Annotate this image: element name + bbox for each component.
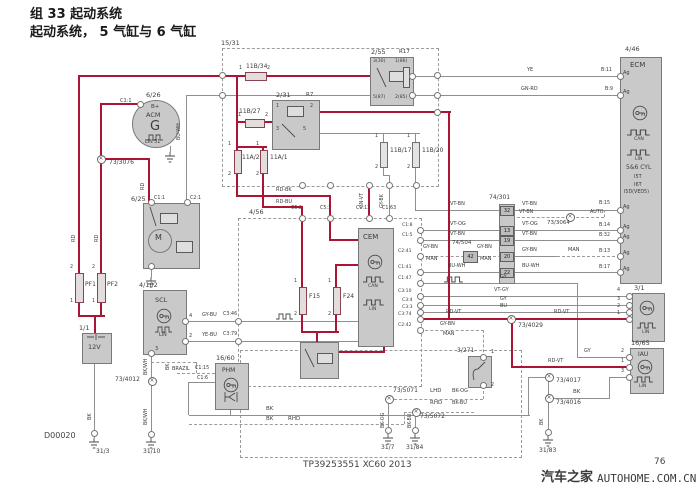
wire-dashed-segment [404, 412, 405, 424]
wire-power-segment [301, 331, 339, 333]
wire-power-segment [79, 75, 375, 77]
wire-power-segment [368, 185, 370, 219]
fuse-11A-1 [260, 150, 268, 174]
label-5-87-: 5(87) [373, 96, 385, 101]
wire-power-segment [148, 158, 150, 204]
pin-circle [417, 302, 424, 309]
label-c1-41: C1:41 [398, 266, 412, 271]
pin-circle [327, 215, 334, 222]
label-74-301: 74/301 [489, 195, 510, 201]
label-1: 1 [617, 312, 620, 317]
pin-circle [235, 338, 242, 345]
label-man: MAN [480, 257, 491, 262]
watermark-site-name: 汽车之家 [541, 471, 593, 484]
label-ag: Ag [623, 235, 630, 240]
pin-circle [299, 215, 306, 222]
label-can: CAN [368, 285, 378, 290]
wire-signal-segment [189, 415, 530, 416]
label-rd: RD [95, 235, 100, 242]
pin-circle [417, 316, 424, 323]
diagram-id: D00020 [44, 432, 76, 440]
label-b-: B+ [151, 105, 159, 111]
pin-circle [417, 293, 424, 300]
wire-power-segment [236, 195, 331, 197]
wire-signal-segment [420, 296, 629, 297]
label-2-85-: 2(85) [395, 96, 407, 101]
lin-bus-icon [627, 149, 651, 156]
connector-pin: 20 [500, 252, 514, 262]
label-1: 1 [70, 300, 73, 305]
label-r7: R7 [306, 93, 313, 99]
label-11a-2: 11A/2 [242, 155, 260, 161]
fuse-11B-20 [412, 142, 420, 168]
ground-symbol [164, 152, 176, 163]
wire-signal-segment [415, 166, 416, 211]
label-bk: BK [266, 417, 273, 423]
label-c5-2: C5:2 [291, 207, 302, 212]
wire-signal-segment [412, 76, 620, 77]
switch-contact [303, 347, 317, 369]
label-c1-15: C1:15 [195, 367, 209, 372]
wire-power-segment [100, 301, 102, 316]
label-gy-bn: GY-BN [477, 245, 492, 250]
switch-contact [374, 66, 390, 90]
label-c1-13: C1:13 [356, 207, 370, 212]
wire-power-segment [511, 318, 513, 368]
label-73-4029: 73/4029 [518, 323, 543, 329]
wire-dashed-segment [189, 424, 404, 425]
wire-power-segment [420, 318, 633, 320]
splice-connector: × [148, 377, 157, 386]
label-lin: LIN [159, 334, 167, 339]
label-vt-og: VT-OG [450, 222, 466, 227]
pin-circle [417, 280, 424, 287]
wire-dashed-segment [604, 210, 605, 217]
pin-circle [91, 430, 98, 437]
label-ye-bu: YE-BU [202, 333, 217, 338]
label-c1-1: C1:1 [154, 197, 165, 202]
page-number: 76 [654, 458, 665, 467]
label-pf1: PF1 [85, 282, 96, 288]
wire-signal-segment [188, 382, 189, 415]
label-acm: ACM [146, 112, 160, 119]
label-11a-1: 11A/1 [270, 155, 288, 161]
wire-signal-segment [94, 362, 95, 438]
label-2: 2 [328, 313, 331, 318]
label-2: 2 [621, 350, 624, 355]
label-bk-bu: BK-BU [409, 414, 414, 428]
label-11b-34: 11B/34 [246, 64, 267, 70]
solenoid-contact [176, 241, 193, 253]
pin-circle [626, 316, 633, 323]
pin-circle [626, 293, 633, 300]
relay-coil [287, 106, 304, 117]
label-c2-41: C2:41 [398, 250, 412, 255]
label-scl: SCL [155, 297, 167, 304]
label-ecm: ECM [630, 62, 645, 69]
wire-power-segment [236, 171, 238, 197]
label-gy-bu: GY-BU [202, 313, 217, 318]
wire-signal-segment [185, 321, 240, 322]
label-lin: LIN [639, 385, 646, 390]
pin-circle [626, 374, 633, 381]
pin-circle [148, 350, 155, 357]
label-b-14: B:14 [599, 224, 610, 229]
label-m: M [155, 234, 162, 242]
label-2: 2 [92, 266, 95, 271]
pin-circle [148, 431, 155, 438]
label-1: 1 [276, 105, 279, 110]
wiring-diagram-canvas: 组 33 起动系统 起动系统， 5 气缸与 6 气缸 TP39253551 XC… [0, 0, 700, 494]
label-c3-10: C3:10 [398, 290, 412, 295]
label-phm: PHM [222, 368, 235, 374]
label-73-5072: 73/5072 [420, 414, 445, 420]
connector-pin: 19 [500, 236, 514, 246]
label-rd: RD [141, 183, 146, 190]
pin-circle [626, 302, 633, 309]
fuse-11B-17 [380, 142, 388, 168]
label-2: 2 [310, 105, 313, 110]
battery-symbol [85, 334, 107, 340]
switch-contact [280, 122, 298, 140]
label-bk-wh: BK/WH [145, 409, 150, 425]
wire-dashed-segment [557, 256, 620, 257]
label-ag: Ag [623, 267, 630, 272]
label-1: 1 [294, 280, 297, 285]
label-c2-1: C2:1 [190, 197, 201, 202]
label-6-25: 6/25 [131, 196, 146, 203]
pin-circle [148, 263, 155, 270]
label-lin: LIN [635, 158, 642, 163]
label-1: 1 [92, 300, 95, 305]
pin-circle [299, 182, 306, 189]
label-73-4016: 73/4016 [556, 400, 581, 406]
label-i6t: I6T [634, 183, 642, 188]
label-lin-31: LIN 31 [145, 141, 160, 146]
solenoid-coil [160, 213, 178, 224]
pulse-wave [155, 326, 173, 333]
label-5-6-cyl: 5&6 CYL [626, 165, 651, 171]
label-gn-rd: GN-RD [521, 87, 538, 92]
wire-power-segment [335, 264, 337, 289]
fuse-11A-2 [234, 150, 242, 174]
label-b-11: B:11 [601, 69, 612, 74]
label-gy: GY [584, 349, 591, 354]
label-4: 4 [617, 289, 620, 294]
wire-power-segment [78, 75, 80, 274]
label-1: 1 [621, 360, 624, 365]
can-bus-icon [363, 276, 385, 283]
label-rd-vt: RD-VT [548, 359, 563, 364]
label-bu-wh: BU-WH [522, 264, 539, 269]
wire-signal-segment [528, 377, 529, 415]
label-lin: LIN [369, 308, 376, 313]
pin-circle [409, 73, 416, 80]
label-gy-bn: GY-BN [522, 248, 537, 253]
pin-circle [417, 227, 424, 234]
label-73-3076: 73/3076 [109, 160, 134, 166]
label-b-9: B:9 [605, 88, 613, 93]
wire-power-segment [335, 312, 337, 333]
label-c3-46: C3:46 [223, 313, 237, 318]
label-ag: Ag [623, 71, 630, 76]
label-bk-og: BK-OG [452, 389, 468, 394]
pin-circle [219, 92, 226, 99]
label-vt-bn: VT-BN [522, 202, 537, 207]
label-4-102: 4/102 [139, 282, 158, 289]
label-gy: GY [500, 297, 507, 302]
fuse-PF2 [97, 273, 106, 303]
splice-connector: × [545, 394, 554, 403]
wire-signal-segment [512, 272, 620, 273]
label-1: 1 [375, 135, 378, 140]
label-31-3: 31/3 [96, 449, 109, 455]
pin-circle [386, 215, 393, 222]
label-gy-bn: GY-BN [440, 322, 455, 327]
label-4-46: 4/46 [625, 46, 640, 53]
splice-connector: × [507, 315, 516, 324]
label-g: G [150, 120, 160, 133]
diagram-title-line2: 起动系统， 5 气缸与 6 气缸 [30, 26, 196, 39]
wire-signal-segment [415, 210, 500, 211]
wire-dashed-segment [151, 362, 196, 363]
label-lhd: LHD [430, 389, 441, 395]
key-icon [637, 359, 653, 375]
label-i5t: I5T [634, 175, 642, 180]
splice-connector: × [385, 395, 394, 404]
pin-circle [235, 318, 242, 325]
label-1: 1 [239, 67, 242, 72]
pin-circle [626, 354, 633, 361]
pin-circle [417, 253, 424, 260]
label-1-86-: 1(86) [395, 60, 407, 65]
label-c5-1: C5:1 [320, 207, 331, 212]
wire-power-segment [318, 111, 451, 113]
label-2: 2 [294, 313, 297, 318]
label-bk-wh: BK/WH [145, 359, 150, 375]
splice-connector: × [97, 155, 106, 164]
wire-power-segment [329, 239, 360, 241]
wire-signal-segment [151, 381, 152, 437]
label-1-1: 1/1 [79, 325, 89, 332]
label-bk-bu: BK-BU [452, 401, 467, 406]
label-f15: F15 [309, 294, 320, 300]
label-rd-bk: RD-BK [276, 188, 292, 193]
label-gy-bn: GY-BN [423, 245, 438, 250]
wire-signal-segment [415, 133, 416, 142]
fuse-11B-34 [245, 72, 267, 81]
label-12v: 12V [88, 344, 101, 351]
label-73-4017: 73/4017 [556, 378, 581, 384]
label-3: 3 [276, 128, 279, 133]
label-iau: IAU [638, 352, 648, 358]
transistor-glyph [222, 391, 240, 403]
fuse-F24 [333, 287, 341, 315]
lin-bus-icon [637, 322, 657, 329]
label-b-17: B:17 [599, 266, 610, 271]
label-3: 3 [617, 298, 620, 303]
pin-circle [137, 101, 144, 108]
switch-contact [146, 205, 160, 229]
document-reference: TP39253551 XC60 2013 [303, 461, 412, 470]
diagram-title-line1: 组 33 起动系统 [30, 8, 122, 21]
pin-circle [327, 182, 334, 189]
label-vt-gy: VT-GY [494, 288, 509, 293]
label-16-65: 16/65 [631, 340, 650, 347]
pin-circle [386, 182, 393, 189]
pin-circle [182, 318, 189, 325]
wire-signal-segment [512, 256, 557, 257]
wire-power-segment [511, 366, 631, 368]
label-74-504: 74/504 [452, 241, 471, 247]
connector-pin: 13 [500, 226, 514, 236]
label-c3-74: C3:74 [398, 313, 412, 318]
label-vt-bn: VT-BN [522, 232, 537, 237]
label-1: 1 [328, 280, 331, 285]
label-c3-4: C3:4 [402, 299, 413, 304]
label-c3-79: C3:79 [223, 333, 237, 338]
pin-circle [219, 72, 226, 79]
label-2: 2 [265, 114, 268, 119]
label-ag: Ag [623, 90, 630, 95]
label-bu-wh: BU-WH [178, 123, 183, 140]
wire-signal-segment [312, 133, 420, 134]
label-rd-vt: RD-VT [446, 310, 461, 315]
label-man: MAN [426, 257, 437, 262]
label-b-15: B:15 [599, 202, 610, 207]
connector-pin: 32 [500, 206, 514, 216]
pin-circle [182, 338, 189, 345]
key-icon [639, 300, 655, 316]
label-ag: Ag [623, 205, 630, 210]
label-bu: BU [500, 304, 507, 309]
label-vt-bn: VT-BN [450, 202, 465, 207]
wire-signal-segment [185, 341, 240, 342]
label-man: MAN [443, 332, 454, 337]
fuse-11B-27 [245, 119, 265, 128]
label-pf2: PF2 [107, 282, 118, 288]
label-73-5071: 73/5071 [393, 388, 418, 394]
label-rd-vt: RD-VT [554, 310, 569, 315]
label-2: 2 [189, 334, 192, 339]
lin-bus-icon [363, 299, 385, 306]
wire-power-segment [262, 171, 264, 208]
pin-circle [366, 215, 373, 222]
label-ag: Ag [623, 225, 630, 230]
label-c1-5: C1:5 [402, 234, 413, 239]
label-2-55: 2/55 [371, 49, 386, 56]
label-c1-8: C1:8 [402, 224, 413, 229]
label-1: 1 [228, 143, 231, 148]
ground-symbol [542, 436, 554, 447]
label-2: 2 [228, 173, 231, 178]
pin-circle [366, 182, 373, 189]
label-3-271: 3/271 [457, 348, 474, 354]
watermark-site-url: AUTOHOME.COM.CN [597, 473, 696, 484]
label-31-83: 31/83 [539, 448, 556, 454]
pulse-wave [276, 313, 294, 320]
label-bk: BK [541, 419, 546, 425]
wire-power-segment [100, 104, 102, 274]
label-rd-bu: RD-BU [276, 200, 292, 205]
pin-circle [434, 72, 441, 79]
wire-dashed-segment [512, 217, 604, 218]
relay-coil [317, 353, 333, 364]
label-1: 1 [407, 135, 410, 140]
label-can: CAN [634, 138, 644, 143]
label-bk: BK [266, 407, 273, 413]
wire-power-segment [335, 264, 360, 266]
label-31-84: 31/84 [406, 445, 423, 451]
wire-power-segment [337, 351, 385, 353]
label-rd: RD [72, 235, 77, 242]
label-15-31: 15/31 [221, 40, 240, 47]
pin-circle [409, 92, 416, 99]
key-switch-glyph [469, 359, 489, 383]
key-icon [156, 308, 172, 324]
pin-circle [417, 237, 424, 244]
label-c1-63: C1:63 [382, 207, 396, 212]
splice-connector: × [545, 373, 554, 382]
label-31-7: 31/7 [381, 445, 394, 451]
label-11b-17: 11B/17 [390, 148, 411, 154]
label-vt-bn: VT-BN [519, 211, 533, 216]
label-c1-1: C1:1 [120, 99, 132, 104]
label-5: 5 [303, 128, 306, 133]
label-i5d-ved5-: I5D(VED5) [624, 191, 649, 196]
wire-power-segment [94, 315, 96, 334]
label-2: 2 [70, 266, 73, 271]
label-2: 2 [407, 166, 410, 171]
label-16-60: 16/60 [216, 355, 235, 362]
label-bk-og: BK-OG [382, 413, 387, 428]
label-gy: GY [500, 275, 507, 280]
label-3: 3 [621, 370, 624, 375]
label-73-4012: 73/4012 [115, 377, 140, 383]
fuse-F15 [299, 287, 307, 315]
pin-circle [417, 269, 424, 276]
label-vt-bn: VT-BN [450, 232, 465, 237]
key-icon [632, 105, 648, 121]
connector-pin: 42 [463, 251, 478, 263]
wire-signal-segment [383, 133, 384, 142]
label-vt-og: VT-OG [522, 222, 538, 227]
label-31-10: 31/10 [143, 449, 160, 455]
fuse-PF1 [75, 273, 84, 303]
wire-signal-segment [240, 321, 359, 322]
label-brazil: BRAZIL [172, 367, 190, 372]
label-b-13: B:13 [599, 250, 610, 255]
label-auto: AUTO [590, 211, 604, 216]
pulse-wave [444, 276, 464, 283]
pin-circle [545, 429, 552, 436]
wire-signal-segment [609, 377, 610, 398]
label-b-32: B:32 [599, 234, 610, 239]
label-c2-42: C2:42 [398, 324, 412, 329]
wire-signal-segment [420, 272, 500, 273]
pin-circle [434, 92, 441, 99]
label-1: 1 [238, 114, 241, 119]
label-1: 1 [491, 351, 494, 356]
label-f24: F24 [343, 294, 354, 300]
wire-power-segment [448, 111, 450, 320]
pin-circle [626, 309, 633, 316]
wire-signal-segment [420, 305, 629, 306]
label-2: 2 [267, 67, 270, 72]
label-rhd: RHD [430, 401, 442, 407]
label-4: 4 [189, 314, 192, 319]
label-c1-47: C1:47 [398, 277, 412, 282]
